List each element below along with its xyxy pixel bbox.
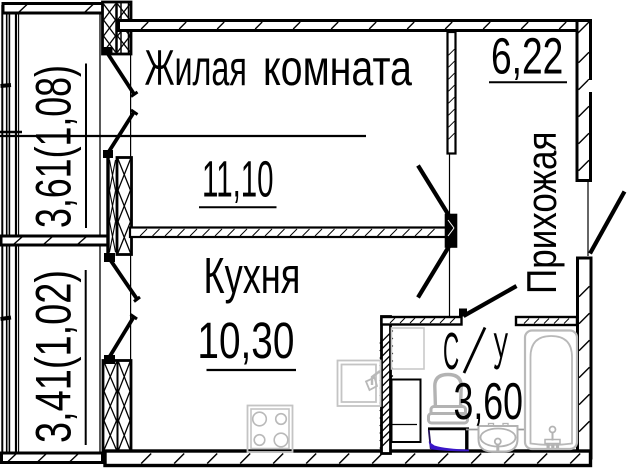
svg-text:10,30: 10,30 — [197, 312, 294, 369]
svg-text:У: У — [493, 321, 508, 380]
svg-text:3,41(1,02): 3,41(1,02) — [27, 270, 82, 443]
svg-text:Прихожая: Прихожая — [519, 131, 566, 294]
svg-text:11,10: 11,10 — [202, 150, 274, 208]
svg-text:Жилая: Жилая — [145, 40, 247, 96]
svg-text:3,60: 3,60 — [454, 374, 523, 431]
svg-text:3,61(1,08): 3,61(1,08) — [27, 65, 82, 228]
svg-text:комната: комната — [263, 39, 413, 96]
svg-text:С: С — [443, 324, 459, 381]
svg-text:6,22: 6,22 — [491, 29, 563, 85]
svg-text:Кухня: Кухня — [204, 248, 301, 305]
